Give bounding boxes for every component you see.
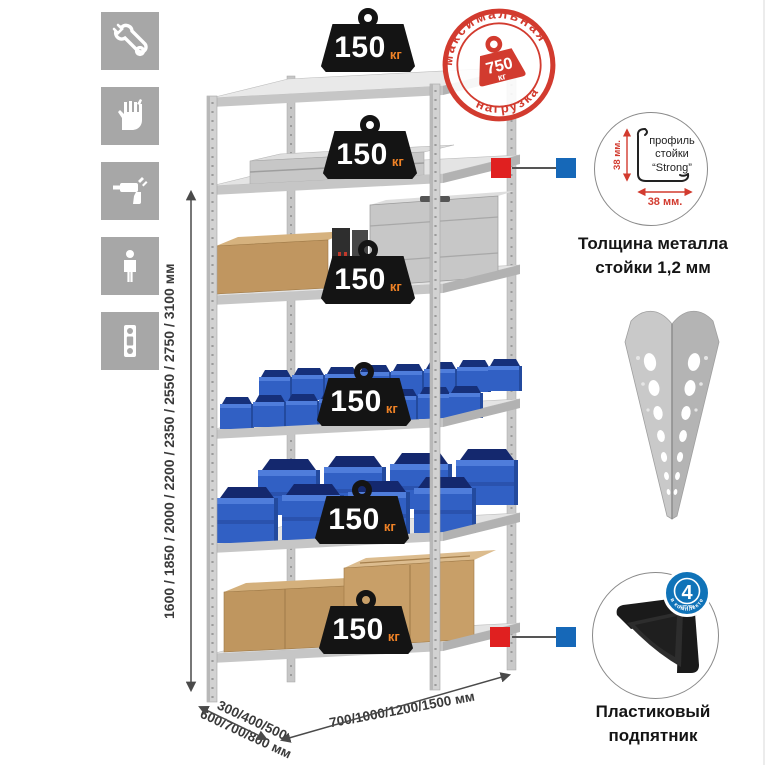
angle-post-image [598, 300, 746, 522]
shelving-product-infographic: 150кг 150кг 150кг 150кг 150кг 150кг макс… [0, 0, 765, 765]
rack-marker-red-top [491, 158, 511, 178]
svg-text:“Strong”: “Strong” [652, 162, 692, 174]
detail-marker-blue-bottom [556, 627, 576, 647]
shelf6-load-badge: 150кг [318, 590, 414, 660]
profile-label: профиль стойки “Strong” [649, 135, 695, 174]
shelf1-load-badge: 150кг [320, 8, 416, 78]
shelf3-load-value: 150 [334, 263, 386, 297]
shelf5-load-badge: 150кг [314, 480, 410, 550]
load-unit: кг [390, 47, 402, 62]
included-count-badge: 4 штуки в комплекте [663, 569, 711, 617]
load-unit: кг [386, 401, 398, 416]
rack-marker-red-bottom [490, 627, 510, 647]
load-unit: кг [388, 629, 400, 644]
detail-marker-blue-top [556, 158, 576, 178]
shelf2-load-badge: 150кг [322, 115, 418, 185]
profile-dim-horizontal: 38 мм. [648, 196, 683, 208]
shelf6-load-value: 150 [332, 613, 384, 647]
svg-text:стойки: стойки [655, 148, 689, 160]
load-unit: кг [392, 154, 404, 169]
shelf3-load-badge: 150кг [320, 240, 416, 310]
shelf4-load-badge: 150кг [316, 362, 412, 432]
included-count-value: 4 [681, 582, 693, 604]
load-unit: кг [390, 279, 402, 294]
profile-dim-vertical: 38 мм. [612, 140, 623, 170]
shelf2-load-value: 150 [336, 138, 388, 172]
shelf5-load-value: 150 [328, 503, 380, 537]
shelf1-load-value: 150 [334, 31, 386, 65]
load-unit: кг [384, 519, 396, 534]
svg-text:профиль: профиль [649, 135, 695, 147]
post-profile-detail: 38 мм. 38 мм. профиль стойки “Strong” [594, 112, 708, 226]
depth-dimension-line [200, 707, 266, 739]
shelf4-load-value: 150 [330, 385, 382, 419]
width-dimension-line [282, 675, 509, 740]
